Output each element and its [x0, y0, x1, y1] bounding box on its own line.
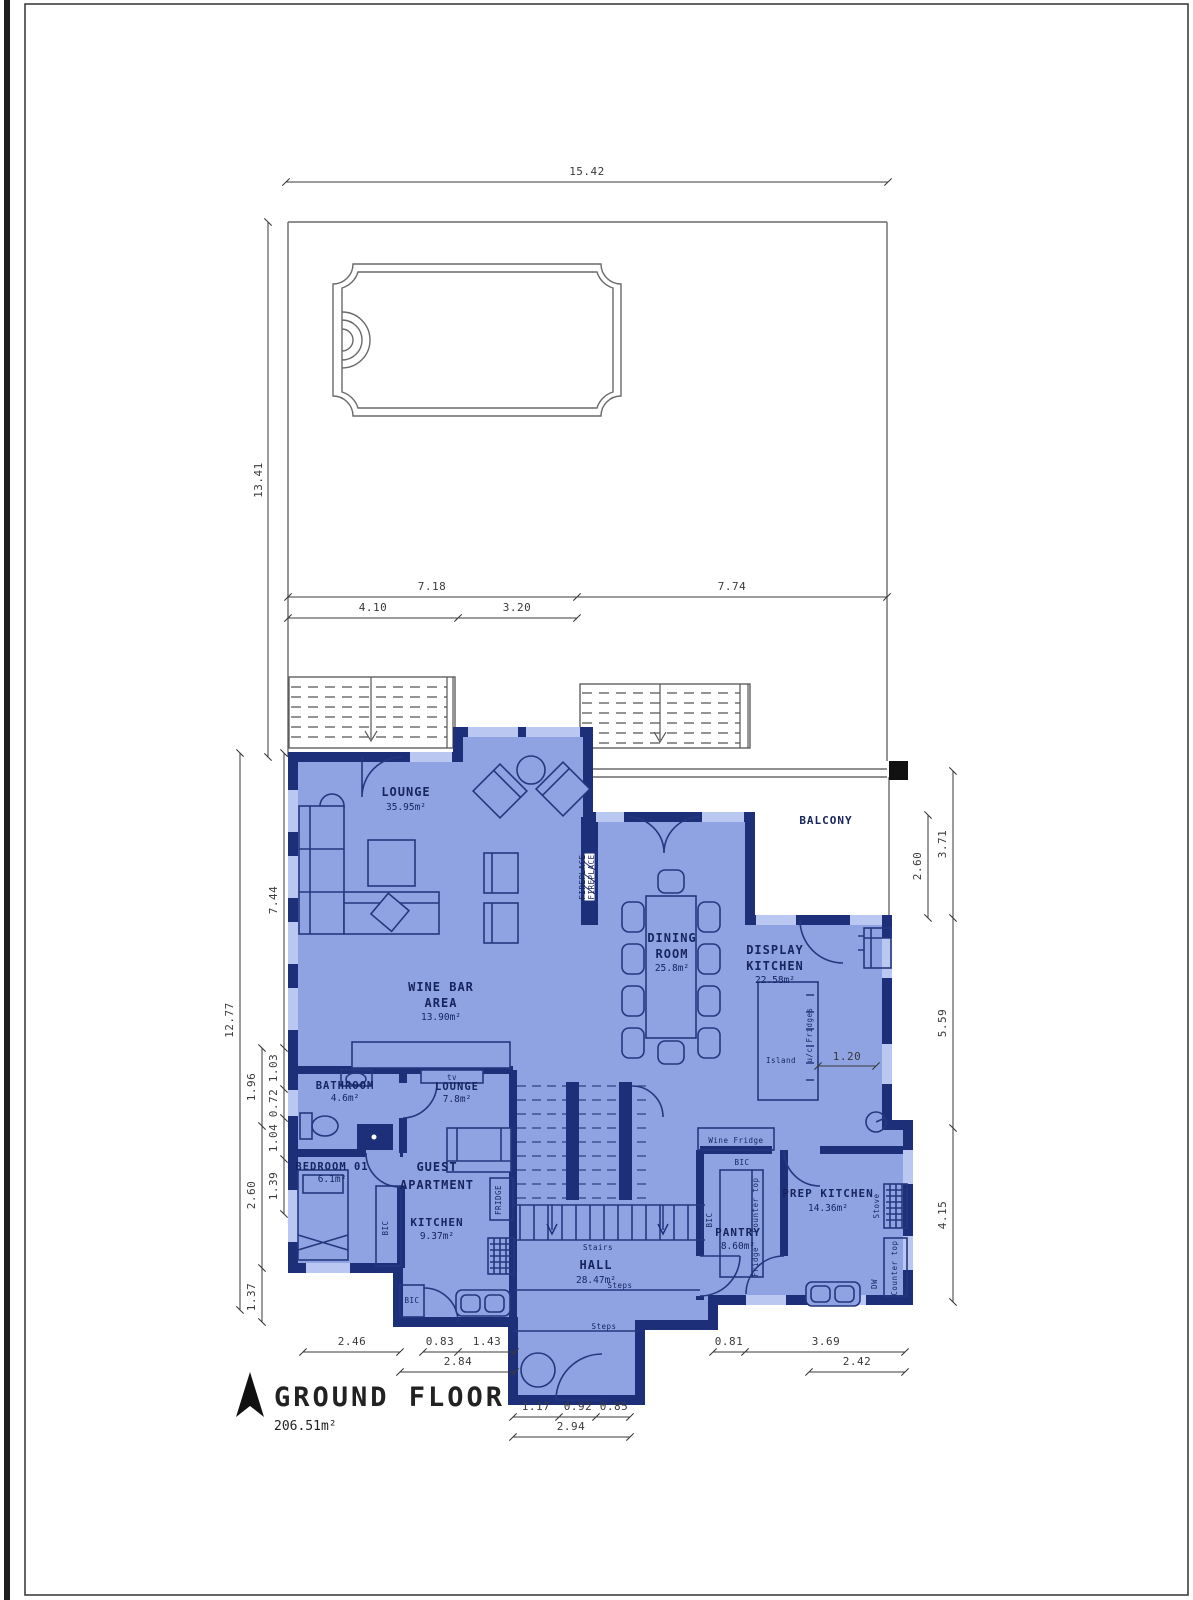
room-area-wine-bar: 13.90m² — [421, 1012, 461, 1023]
label-fridge-guest: FRIDGE — [494, 1185, 503, 1215]
label-wine-fridge: Wine Fridge — [708, 1136, 763, 1145]
dim-plot-height: 13.41 — [252, 462, 265, 498]
side-table — [368, 840, 415, 886]
dim-west-f: 1.39 — [267, 1172, 280, 1201]
room-label-hall: HALL — [580, 1258, 613, 1272]
label-dw: DW — [870, 1279, 879, 1289]
dim-entry-b: 0.92 — [564, 1400, 593, 1413]
dim-east-outer: 3.71 — [936, 830, 949, 859]
room-label-dining-1: DINING — [647, 931, 696, 945]
dim-west-d: 1.04 — [267, 1124, 280, 1153]
dim-west-g: 1.37 — [245, 1283, 258, 1312]
room-area-bedroom: 6.1m² — [318, 1174, 347, 1185]
room-label-bathroom: BATHROOM — [316, 1080, 375, 1092]
label-tv: tv — [447, 1073, 457, 1082]
label-fridge-pantry: Fridge — [751, 1247, 760, 1277]
dim-west-lounge: 7.44 — [267, 886, 280, 915]
label-stairs: Stairs — [583, 1243, 613, 1252]
dim-west-a: 1.03 — [267, 1054, 280, 1083]
wine-bar-counter — [352, 1042, 510, 1068]
floor-plan-page: LOUNGE 35.95m² BALCONY DINING ROOM 25.8m… — [0, 0, 1193, 1600]
ottoman — [484, 903, 518, 943]
dim-south-e: 0.81 — [715, 1335, 744, 1348]
column — [889, 761, 908, 780]
plan-total-area: 206.51m² — [274, 1419, 337, 1434]
title-block: GROUND FLOOR 206.51m² — [236, 1372, 505, 1434]
label-bic-pantry-top: BIC — [734, 1158, 749, 1167]
exterior-stairs-left — [289, 677, 455, 748]
room-label-guest-apartment-1: GUEST — [416, 1160, 457, 1174]
dim-west-c: 0.72 — [267, 1089, 280, 1118]
floor-plan-drawing: LOUNGE 35.95m² BALCONY DINING ROOM 25.8m… — [0, 0, 1193, 1600]
label-uc-fridges: u/c Fridges — [805, 1007, 814, 1062]
dim-south-g: 2.42 — [843, 1355, 872, 1368]
dim-top-sub-right: 3.20 — [503, 601, 532, 614]
label-steps-2: Steps — [591, 1322, 616, 1331]
label-counter-top-pantry: Counter top — [751, 1177, 760, 1232]
room-label-prep-kitchen: PREP KITCHEN — [782, 1187, 873, 1200]
room-label-dining-2: ROOM — [656, 947, 689, 961]
dim-west-total: 12.77 — [223, 1002, 236, 1038]
room-label-display-kitchen-2: KITCHEN — [746, 959, 804, 973]
dim-east-low: 4.15 — [936, 1201, 949, 1230]
room-area-pantry: 8.60m² — [721, 1241, 755, 1252]
dim-east-mid: 5.59 — [936, 1009, 949, 1038]
room-label-lounge: LOUNGE — [381, 785, 430, 799]
room-label-bedroom: BEDROOM 01 — [295, 1161, 368, 1173]
pool — [333, 264, 621, 416]
label-bic-pantry-side: BIC — [705, 1212, 714, 1227]
dim-south-c: 1.43 — [473, 1335, 502, 1348]
dim-top-right: 7.74 — [718, 580, 747, 593]
dim-island: 1.20 — [833, 1050, 862, 1063]
dim-east-inner: 2.60 — [911, 852, 924, 881]
label-fireplace-1: FIREPLACE — [578, 854, 587, 899]
room-area-bathroom: 4.6m² — [331, 1093, 360, 1104]
room-area-guest-kitchen: 9.37m² — [420, 1231, 454, 1242]
room-area-lounge: 35.95m² — [386, 802, 426, 813]
room-area-display-kitchen: 22.58m² — [755, 975, 795, 986]
dim-south-a: 2.46 — [338, 1335, 367, 1348]
pool-roman-steps — [342, 312, 370, 368]
label-fireplace-2: FIREPLACE — [587, 854, 596, 899]
label-bic-kitchen: BIC — [404, 1296, 419, 1305]
page-edge — [4, 0, 10, 1600]
dim-west-b: 1.96 — [245, 1073, 258, 1102]
exterior-stairs-right — [580, 684, 750, 748]
label-bic-bedroom: BIC — [381, 1220, 390, 1235]
dim-entry-a: 1.17 — [522, 1400, 551, 1413]
label-steps-1: Steps — [607, 1281, 632, 1290]
label-island: Island — [766, 1056, 796, 1065]
dim-south-d: 2.84 — [444, 1355, 473, 1368]
room-area-guest-lounge: 7.8m² — [443, 1094, 472, 1105]
label-counter-top-prep: Counter top — [890, 1240, 899, 1295]
room-label-wine-bar-2: AREA — [425, 996, 458, 1010]
ottoman — [484, 853, 518, 893]
room-label-guest-lounge: LOUNGE — [435, 1081, 479, 1093]
dim-south-f: 3.69 — [812, 1335, 841, 1348]
room-area-dining: 25.8m² — [655, 963, 689, 974]
dim-top-left: 7.18 — [418, 580, 447, 593]
room-label-wine-bar-1: WINE BAR — [408, 980, 474, 994]
plan-title: GROUND FLOOR — [274, 1382, 505, 1413]
dim-entry-c: 0.85 — [600, 1400, 629, 1413]
label-stove: Stove — [872, 1193, 881, 1218]
room-label-guest-apartment-2: APARTMENT — [400, 1178, 474, 1192]
dim-south-b: 0.83 — [426, 1335, 455, 1348]
dim-top-sub-left: 4.10 — [359, 601, 388, 614]
room-label-display-kitchen-1: DISPLAY — [746, 943, 804, 957]
dim-entry-d: 2.94 — [557, 1420, 586, 1433]
room-area-prep-kitchen: 14.36m² — [808, 1203, 848, 1214]
dim-plot-width: 15.42 — [569, 165, 605, 178]
north-arrow-icon — [236, 1372, 264, 1417]
room-label-guest-kitchen: KITCHEN — [410, 1216, 463, 1229]
room-label-balcony: BALCONY — [799, 814, 852, 827]
dim-west-e: 2.60 — [245, 1181, 258, 1210]
